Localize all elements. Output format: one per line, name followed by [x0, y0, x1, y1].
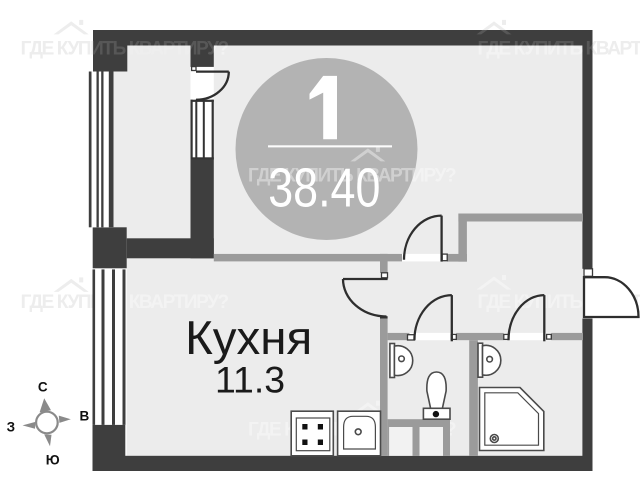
svg-text:С: С: [38, 380, 48, 395]
svg-text:В: В: [80, 409, 90, 424]
svg-text:11.3: 11.3: [215, 359, 285, 401]
svg-text:Ю: Ю: [46, 453, 60, 468]
svg-text:З: З: [7, 420, 15, 435]
svg-text:Кухня: Кухня: [185, 312, 312, 365]
